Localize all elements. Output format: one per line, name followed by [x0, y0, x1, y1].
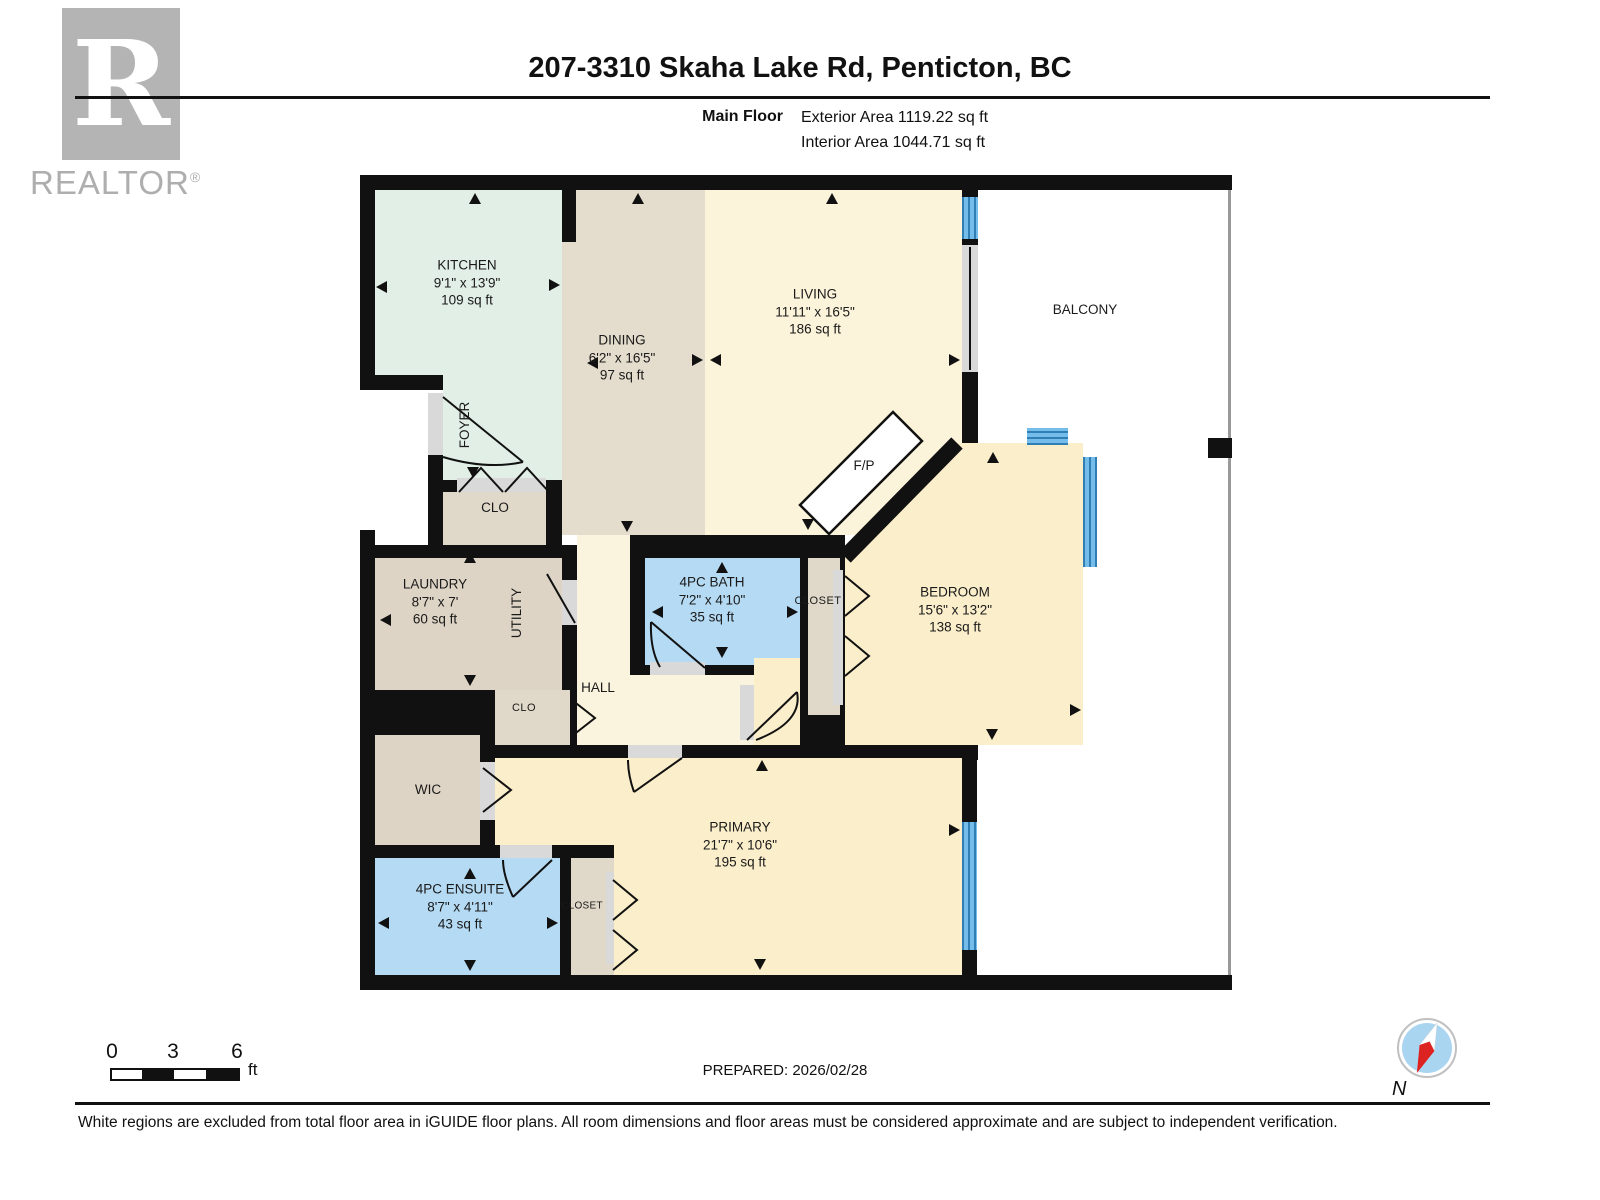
- label-balcony: BALCONY: [1053, 301, 1118, 319]
- label-closet-bedroom: CLOSET: [794, 594, 841, 608]
- slider-track-line: [969, 247, 971, 370]
- label-wic: WIC: [415, 781, 441, 799]
- room-clo-hall: [495, 690, 570, 745]
- balcony-post: [1208, 438, 1232, 458]
- interior-area: Interior Area 1044.71 sq ft: [801, 134, 985, 152]
- label-bedroom: BEDROOM15'6" x 13'2"138 sq ft: [918, 584, 992, 637]
- label-foyer: FOYER: [456, 402, 474, 449]
- window-bedroom-right-icon: [1083, 457, 1097, 567]
- opening-closet-primary: [606, 872, 614, 964]
- wall-foyer-stub: [428, 455, 443, 545]
- wall-top: [360, 175, 1232, 190]
- opening-entry-door: [428, 393, 443, 455]
- window-living-icon: [962, 197, 978, 239]
- label-ensuite: 4PC ENSUITE8'7" x 4'11"43 sq ft: [416, 881, 505, 934]
- wall-utility-a: [562, 558, 577, 580]
- label-dining: DINING6'2" x 16'5"97 sq ft: [589, 332, 656, 385]
- wall-foyer-step: [360, 375, 445, 390]
- label-clo-hall: CLO: [512, 701, 536, 715]
- wall-left-upper: [360, 175, 375, 390]
- room-dining: [562, 242, 705, 535]
- scale-unit: ft: [248, 1060, 257, 1080]
- opening-closet-bedroom: [833, 570, 843, 705]
- label-closet-primary: CLOSET: [561, 900, 603, 913]
- wall-utility-b: [562, 625, 577, 690]
- scale-seg-1: [110, 1068, 144, 1081]
- header-rule: [75, 96, 1490, 99]
- prepared-date: PREPARED: 2026/02/28: [660, 1062, 910, 1079]
- room-hall: [577, 535, 630, 745]
- wall-kitchen-dining-stub: [562, 190, 576, 242]
- room-primary: [614, 845, 962, 975]
- scale-seg-2: [142, 1068, 174, 1081]
- opening-bath-door: [650, 662, 705, 675]
- label-hall: HALL: [581, 679, 615, 697]
- wall-laundry-top: [360, 545, 578, 558]
- scale-tick-0: 0: [102, 1040, 122, 1064]
- exterior-area: Exterior Area 1119.22 sq ft: [801, 109, 988, 127]
- scale-seg-3: [174, 1068, 206, 1081]
- scale-tick-6: 6: [227, 1040, 247, 1064]
- label-clo-entry: CLO: [481, 499, 509, 517]
- opening-clo-entry: [457, 478, 546, 492]
- floor-plan-page: R REALTOR® 207-3310 Skaha Lake Rd, Penti…: [0, 0, 1600, 1200]
- compass-icon: [1387, 1008, 1467, 1088]
- opening-bedroom-door: [740, 685, 754, 740]
- label-primary: PRIMARY21'7" x 10'6"195 sq ft: [703, 819, 777, 872]
- label-kitchen: KITCHEN9'1" x 13'9"109 sq ft: [434, 257, 501, 310]
- opening-primary-door: [628, 745, 682, 758]
- label-laundry: LAUNDRY8'7" x 7'60 sq ft: [403, 576, 467, 629]
- label-bath: 4PC BATH7'2" x 4'10"35 sq ft: [679, 574, 746, 627]
- floor-label: Main Floor: [600, 108, 783, 126]
- window-bedroom-top-icon: [1027, 428, 1068, 445]
- page-title: 207-3310 Skaha Lake Rd, Penticton, BC: [0, 52, 1600, 85]
- disclaimer-text: White regions are excluded from total fl…: [78, 1114, 1338, 1132]
- wall-left-mid: [360, 530, 375, 690]
- label-fireplace: F/P: [853, 457, 874, 475]
- realtor-logo-text: REALTOR®: [30, 164, 201, 202]
- opening-utility: [562, 580, 577, 625]
- window-primary-icon: [962, 822, 977, 950]
- label-utility: UTILITY: [508, 588, 526, 638]
- footer-rule: [75, 1102, 1490, 1105]
- wall-mass: [360, 690, 495, 737]
- label-living: LIVING11'11" x 16'5"186 sq ft: [775, 286, 855, 339]
- compass-north-label: N: [1392, 1078, 1406, 1101]
- scale-seg-4: [206, 1068, 240, 1081]
- registered-mark: ®: [190, 169, 201, 185]
- bedroom-alcove: [754, 658, 800, 745]
- opening-wic: [480, 762, 495, 820]
- balcony-railing: [1228, 190, 1231, 975]
- room-dining-upper: [576, 190, 705, 242]
- wall-clo-cap-left: [443, 478, 457, 492]
- scale-tick-3: 3: [163, 1040, 183, 1064]
- opening-ensuite-door: [500, 845, 552, 858]
